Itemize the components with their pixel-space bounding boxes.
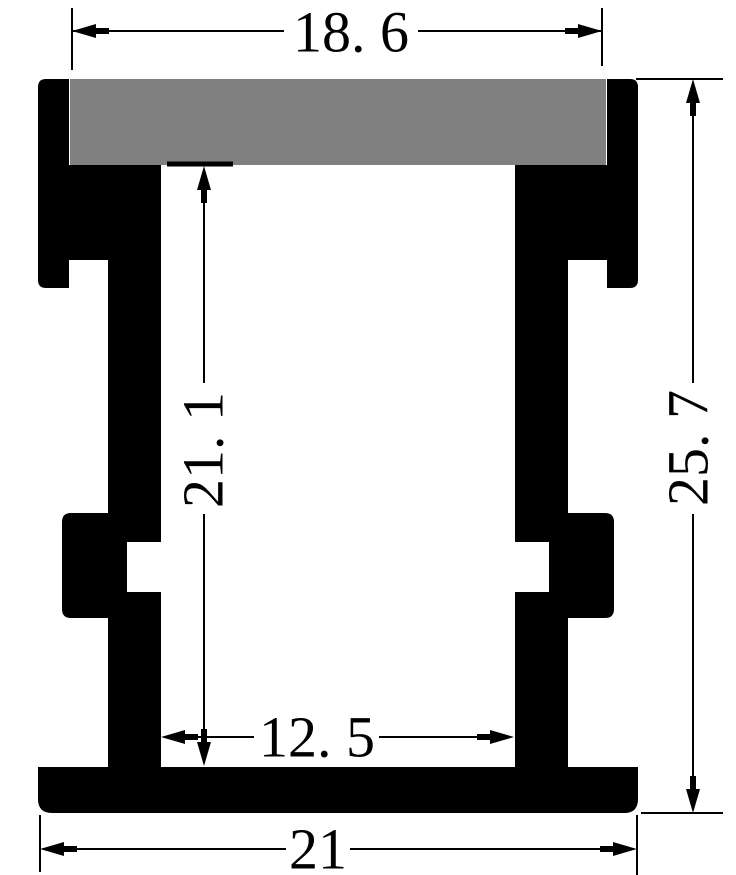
profile-drawing: 18. 625. 721. 112. 521 [0,0,736,875]
arrow-overall-width-right [600,842,637,856]
dim-label-inner-width: 12. 5 [259,705,375,770]
dim-label-top-width: 18. 6 [293,0,409,65]
profile-geometry-layer [38,79,638,813]
arrow-overall-width-left [40,842,77,856]
outer-wall-left [38,79,69,288]
arrow-overall-height-bottom [686,776,700,813]
top-block-left [69,165,161,260]
outer-wall-right [607,79,638,288]
arrow-top-width-right [565,24,602,38]
base-plate [38,767,638,813]
top-block-right [515,165,607,260]
arrow-inner-width-left [161,730,198,744]
arrow-inner-height-bottom [197,729,211,766]
inner-column-left [108,260,161,767]
drawing-canvas: 18. 625. 721. 112. 521 [0,0,736,875]
clip-bump-right [568,513,614,618]
dim-label-inner-height: 21. 1 [171,392,236,508]
arrow-top-width-left [72,24,109,38]
arrow-inner-width-right [477,730,514,744]
arrow-inner-height-top [197,166,211,203]
dim-label-overall-height: 25. 7 [656,390,721,506]
dim-label-overall-width: 21 [289,817,347,875]
clip-bump-left [62,513,108,618]
inner-column-right [515,260,568,767]
arrow-overall-height-top [686,79,700,116]
